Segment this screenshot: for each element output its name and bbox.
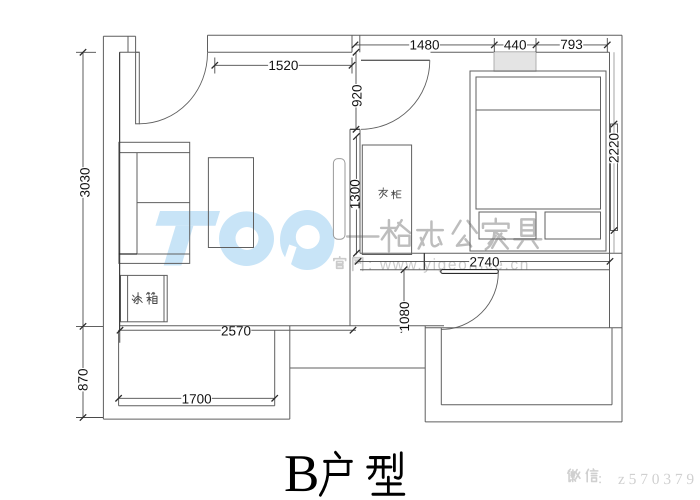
svg-text:440: 440	[504, 38, 527, 53]
svg-text:920: 920	[349, 84, 364, 107]
svg-text:z570379: z570379	[618, 471, 698, 488]
svg-text:2220: 2220	[606, 133, 621, 163]
svg-text:1300: 1300	[348, 179, 363, 209]
svg-text:1080: 1080	[397, 301, 412, 331]
svg-text:1700: 1700	[182, 391, 212, 406]
svg-text:B: B	[284, 445, 319, 500]
svg-text:1480: 1480	[409, 38, 439, 53]
svg-text:2570: 2570	[221, 324, 251, 339]
svg-text:793: 793	[560, 37, 583, 52]
svg-text:3030: 3030	[78, 167, 93, 197]
svg-text:2740: 2740	[469, 255, 499, 270]
svg-text::: :	[598, 471, 605, 487]
svg-text:870: 870	[75, 368, 90, 391]
svg-text:1520: 1520	[268, 58, 298, 73]
